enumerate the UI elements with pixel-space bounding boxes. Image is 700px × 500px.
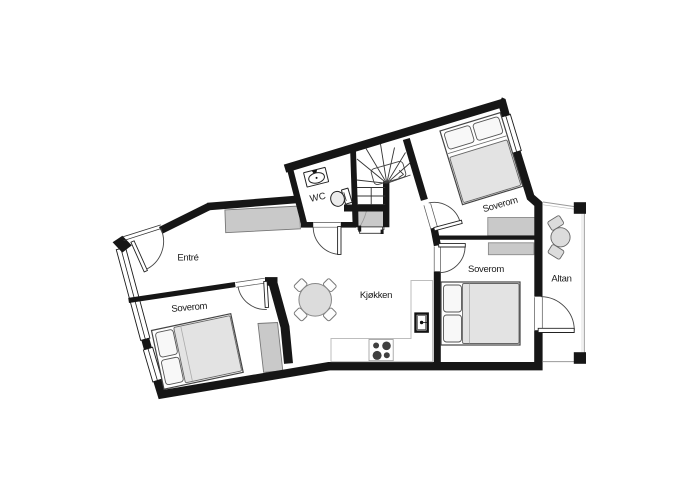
svg-text:Kjøkken: Kjøkken xyxy=(360,290,392,301)
svg-text:Altan: Altan xyxy=(551,273,571,284)
svg-text:Entré: Entré xyxy=(177,252,198,263)
svg-text:Soverom: Soverom xyxy=(468,264,504,275)
